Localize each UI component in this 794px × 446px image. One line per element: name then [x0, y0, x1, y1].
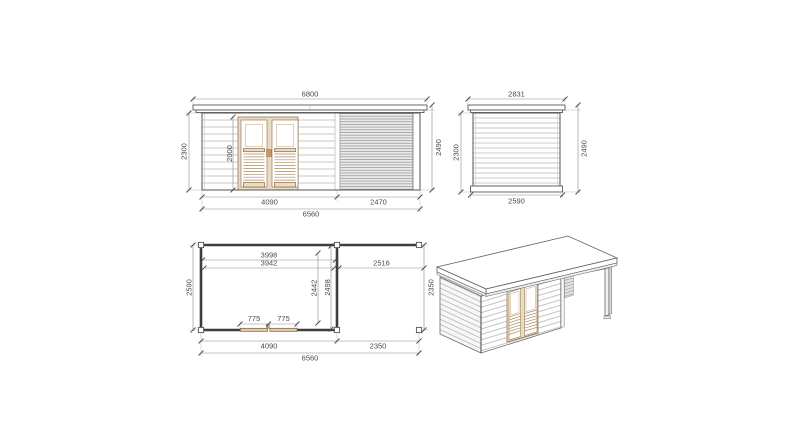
front-double-door	[238, 117, 298, 190]
plan-door	[240, 324, 297, 331]
3d-canopy-post	[604, 263, 612, 318]
perspective-3d-view	[428, 225, 663, 380]
plan-door-leaf-left	[240, 328, 267, 331]
dim-side-wall-height-left: 2300	[453, 144, 461, 161]
dim-plan-canopy-interior-width: 2516	[373, 259, 390, 268]
front-roof	[193, 105, 427, 113]
dim-plan-door-leaf-right: 775	[277, 314, 290, 323]
front-elevation-view: 6800 2300 2000 2490 4090 2470 6560	[181, 83, 449, 225]
dim-side-roof-depth: 2831	[508, 90, 525, 99]
plan-door-leaf-right	[270, 328, 297, 331]
dim-front-roof-width: 6800	[302, 90, 319, 99]
dim-plan-total-width: 6560	[302, 354, 319, 363]
3d-double-door	[507, 282, 538, 342]
floor-plan-view: 3998 3942 2516 2590 2442 2498 2350 775 7…	[181, 236, 449, 373]
side-roof	[468, 105, 565, 113]
side-base	[471, 186, 563, 192]
dim-plan-depth-left: 2590	[185, 279, 194, 296]
dim-front-wall-height-left: 2300	[181, 143, 189, 160]
canopy-right-post	[413, 113, 420, 190]
plan-dimensions: 3998 3942 2516 2590 2442 2498 2350 775 7…	[185, 243, 436, 363]
dim-plan-door-leaf-left: 775	[248, 314, 261, 323]
dim-plan-canopy-width: 2350	[370, 342, 387, 351]
side-wall-siding	[473, 113, 560, 186]
dim-front-cabin-width: 4090	[261, 198, 278, 207]
dim-side-total-height-right: 2490	[580, 140, 589, 157]
dim-front-total-width: 6560	[303, 210, 320, 219]
plan-extension-lines	[189, 245, 428, 356]
dim-side-base-depth: 2590	[508, 197, 525, 206]
dim-plan-interior-depth-a: 2442	[310, 280, 319, 297]
side-elevation-view: 2831 2300 2490 2590	[453, 83, 588, 225]
dim-front-canopy-width: 2470	[370, 198, 387, 207]
technical-drawing-canvas: 6800 2300 2000 2490 4090 2470 6560 2831	[0, 0, 794, 446]
front-canopy-bay	[335, 113, 420, 190]
dim-plan-cabin-width: 4090	[261, 342, 278, 351]
canopy-left-post	[335, 113, 340, 190]
dim-plan-interior-width-b: 3942	[261, 259, 278, 268]
door-handle	[267, 150, 272, 157]
3d-front-right-corner-post	[561, 270, 564, 328]
dim-front-total-height-right: 2490	[434, 139, 443, 156]
canopy-back-wall-hatch	[340, 113, 413, 190]
dim-plan-interior-depth-b: 2498	[323, 279, 332, 296]
dim-front-door-height: 2000	[225, 145, 234, 162]
